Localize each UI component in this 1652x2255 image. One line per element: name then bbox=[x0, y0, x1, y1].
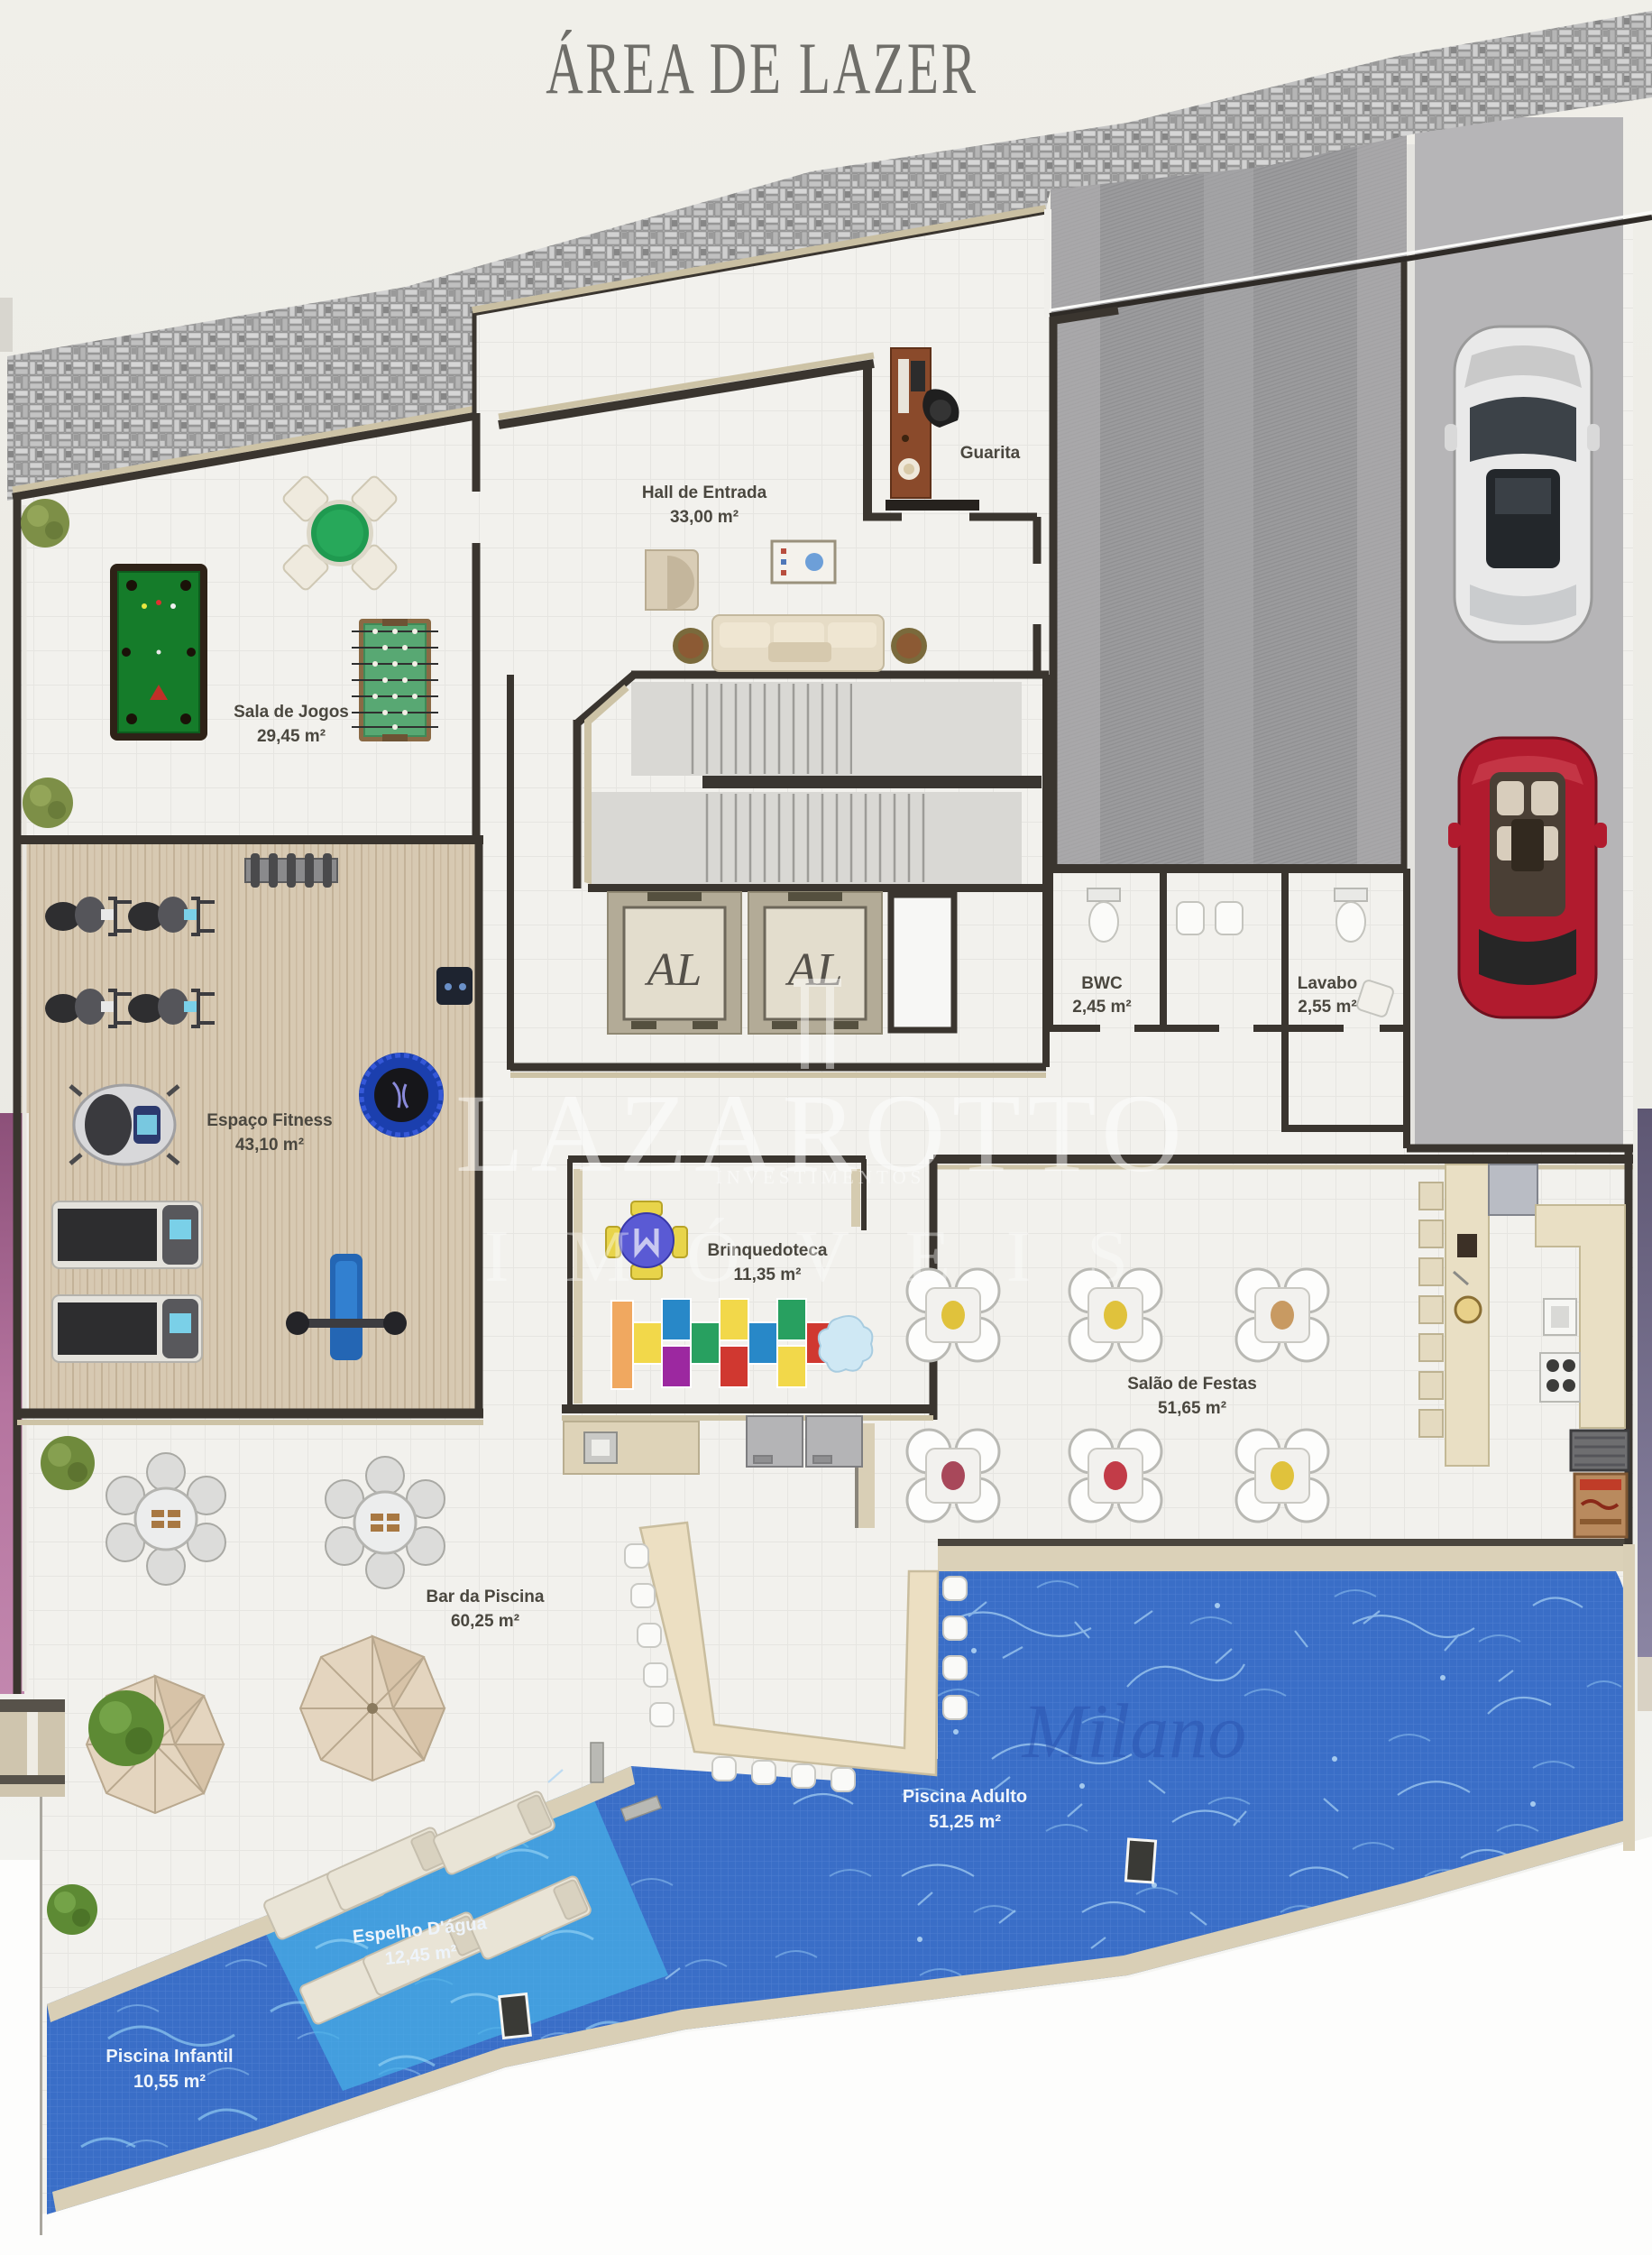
svg-text:Piscina Infantil: Piscina Infantil bbox=[106, 2047, 233, 2066]
svg-text:43,10 m²: 43,10 m² bbox=[235, 1136, 304, 1155]
svg-text:60,25 m²: 60,25 m² bbox=[451, 1612, 519, 1631]
svg-text:51,25 m²: 51,25 m² bbox=[929, 1812, 1001, 1832]
svg-text:Salão de Festas: Salão de Festas bbox=[1127, 1375, 1257, 1394]
svg-text:51,65 m²: 51,65 m² bbox=[1158, 1399, 1226, 1418]
svg-text:29,45 m²: 29,45 m² bbox=[257, 727, 326, 746]
svg-text:10,55 m²: 10,55 m² bbox=[133, 2072, 206, 2092]
svg-text:Piscina Adulto: Piscina Adulto bbox=[903, 1787, 1027, 1807]
svg-text:Sala de Jogos: Sala de Jogos bbox=[234, 703, 349, 722]
svg-text:IMÓVEIS: IMÓVEIS bbox=[484, 1215, 1184, 1297]
svg-text:AL: AL bbox=[645, 944, 702, 996]
svg-text:Bar da Piscina: Bar da Piscina bbox=[427, 1588, 545, 1606]
svg-text:INVESTIMENTOS: INVESTIMENTOS bbox=[716, 1166, 926, 1188]
svg-text:Hall de Entrada: Hall de Entrada bbox=[642, 483, 767, 502]
svg-text:BWC: BWC bbox=[1081, 974, 1123, 993]
svg-text:Guarita: Guarita bbox=[960, 444, 1021, 463]
svg-text:2,45 m²: 2,45 m² bbox=[1072, 998, 1131, 1017]
svg-text:2,55 m²: 2,55 m² bbox=[1298, 998, 1356, 1017]
svg-text:Lavabo: Lavabo bbox=[1298, 974, 1358, 993]
svg-text:33,00 m²: 33,00 m² bbox=[670, 508, 739, 527]
svg-text:Milano: Milano bbox=[1021, 1688, 1246, 1774]
svg-text:ÁREA DE LAZER: ÁREA DE LAZER bbox=[546, 28, 978, 109]
svg-text:Espaço Fitness: Espaço Fitness bbox=[206, 1111, 332, 1130]
